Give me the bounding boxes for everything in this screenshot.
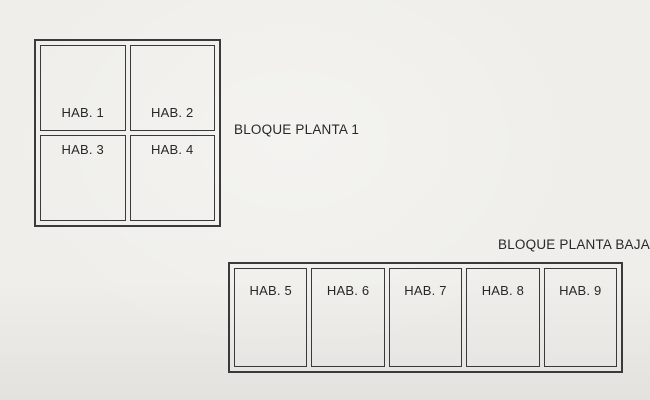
room-hab-8: HAB. 8 <box>466 268 539 367</box>
block-title-planta-1: BLOQUE PLANTA 1 <box>234 122 359 137</box>
block-planta-1: HAB. 1 HAB. 2 HAB. 3 HAB. 4 <box>34 39 221 227</box>
room-hab-2-label: HAB. 2 <box>151 106 193 130</box>
room-hab-2: HAB. 2 <box>130 45 216 131</box>
room-hab-5-label: HAB. 5 <box>250 269 292 298</box>
room-hab-3-label: HAB. 3 <box>62 136 104 157</box>
room-hab-3: HAB. 3 <box>40 135 126 221</box>
room-hab-9-label: HAB. 9 <box>559 269 601 298</box>
floor-plan-canvas: HAB. 1 HAB. 2 HAB. 3 HAB. 4 BLOQUE PLANT… <box>0 0 650 400</box>
block-title-planta-baja: BLOQUE PLANTA BAJA <box>498 237 650 252</box>
room-hab-4-label: HAB. 4 <box>151 136 193 157</box>
room-hab-7-label: HAB. 7 <box>404 269 446 298</box>
room-hab-1-label: HAB. 1 <box>62 106 104 130</box>
room-hab-1: HAB. 1 <box>40 45 126 131</box>
room-hab-4: HAB. 4 <box>130 135 216 221</box>
room-hab-5: HAB. 5 <box>234 268 307 367</box>
room-hab-6-label: HAB. 6 <box>327 269 369 298</box>
room-hab-8-label: HAB. 8 <box>482 269 524 298</box>
room-hab-9: HAB. 9 <box>544 268 617 367</box>
block-planta-baja: HAB. 5 HAB. 6 HAB. 7 HAB. 8 HAB. 9 <box>228 262 623 373</box>
room-hab-6: HAB. 6 <box>311 268 384 367</box>
room-hab-7: HAB. 7 <box>389 268 462 367</box>
